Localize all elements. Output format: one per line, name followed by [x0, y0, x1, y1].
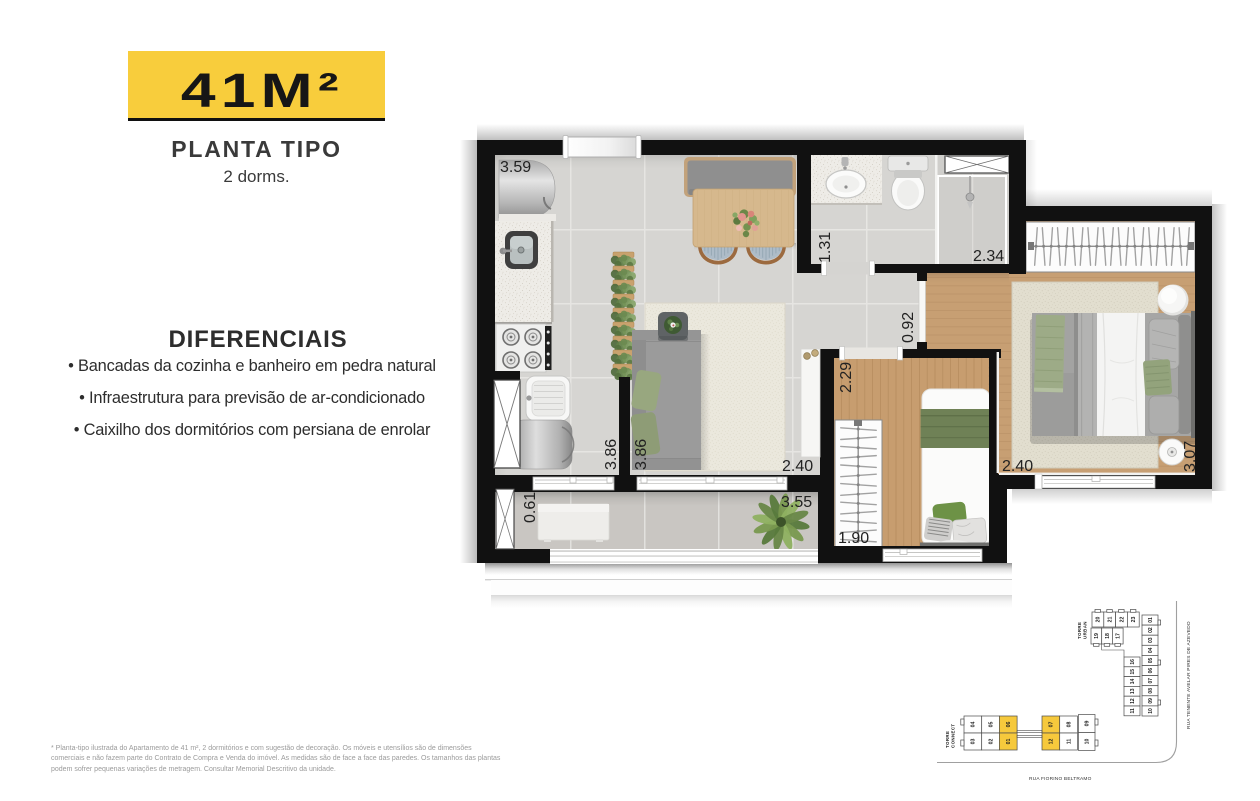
svg-text:23: 23	[1131, 617, 1137, 623]
svg-text:18: 18	[1105, 633, 1111, 639]
svg-text:11: 11	[1130, 708, 1136, 714]
svg-text:10: 10	[1148, 708, 1154, 714]
svg-text:CONNECT: CONNECT	[951, 723, 956, 748]
svg-text:URBAN: URBAN	[1083, 621, 1088, 639]
svg-text:03: 03	[1148, 637, 1154, 643]
svg-text:09: 09	[1085, 721, 1091, 727]
svg-text:08: 08	[1148, 688, 1154, 694]
svg-text:10: 10	[1085, 739, 1091, 745]
svg-text:1.31: 1.31	[817, 232, 834, 263]
svg-text:01: 01	[1006, 739, 1012, 745]
svg-text:0.61: 0.61	[522, 492, 539, 523]
svg-text:2.29: 2.29	[838, 362, 855, 393]
svg-text:04: 04	[1148, 647, 1154, 653]
svg-text:14: 14	[1130, 679, 1136, 685]
svg-text:15: 15	[1130, 669, 1136, 675]
svg-text:21: 21	[1108, 617, 1114, 623]
svg-text:02: 02	[988, 739, 994, 745]
svg-text:17: 17	[1116, 633, 1122, 639]
svg-text:12: 12	[1130, 698, 1136, 704]
svg-text:07: 07	[1049, 722, 1055, 728]
svg-text:12: 12	[1049, 739, 1055, 745]
svg-text:3.55: 3.55	[781, 494, 812, 511]
svg-text:06: 06	[1148, 668, 1154, 674]
svg-text:2.34: 2.34	[973, 248, 1004, 265]
svg-text:04: 04	[971, 722, 977, 728]
svg-text:3.07: 3.07	[1182, 441, 1199, 472]
svg-text:TORRE: TORRE	[945, 731, 950, 748]
svg-text:3.86: 3.86	[633, 439, 650, 470]
svg-text:19: 19	[1094, 633, 1100, 639]
svg-text:09: 09	[1148, 698, 1154, 704]
svg-text:02: 02	[1148, 627, 1154, 633]
svg-text:RUA FIORINO BELTRAMO: RUA FIORINO BELTRAMO	[1029, 776, 1092, 782]
svg-text:0.92: 0.92	[900, 312, 917, 343]
svg-text:16: 16	[1130, 659, 1136, 665]
svg-text:08: 08	[1066, 722, 1072, 728]
svg-text:07: 07	[1148, 678, 1154, 684]
svg-text:03: 03	[971, 739, 977, 745]
svg-text:3.86: 3.86	[603, 439, 620, 470]
svg-text:05: 05	[988, 722, 994, 728]
svg-text:05: 05	[1148, 658, 1154, 664]
svg-text:06: 06	[1006, 722, 1012, 728]
svg-text:22: 22	[1119, 617, 1125, 623]
svg-text:2.40: 2.40	[1002, 458, 1033, 475]
svg-text:11: 11	[1066, 739, 1072, 745]
svg-text:01: 01	[1148, 617, 1154, 623]
svg-text:RUA TENENTE AVELAR PIRES DE AZ: RUA TENENTE AVELAR PIRES DE AZEVEDO	[1186, 621, 1192, 729]
svg-text:2.40: 2.40	[782, 458, 813, 475]
svg-text:3.59: 3.59	[500, 159, 531, 176]
svg-text:13: 13	[1130, 688, 1136, 694]
svg-text:1.90: 1.90	[838, 530, 869, 547]
svg-text:TORRE: TORRE	[1077, 622, 1082, 639]
svg-text:20: 20	[1096, 617, 1102, 623]
